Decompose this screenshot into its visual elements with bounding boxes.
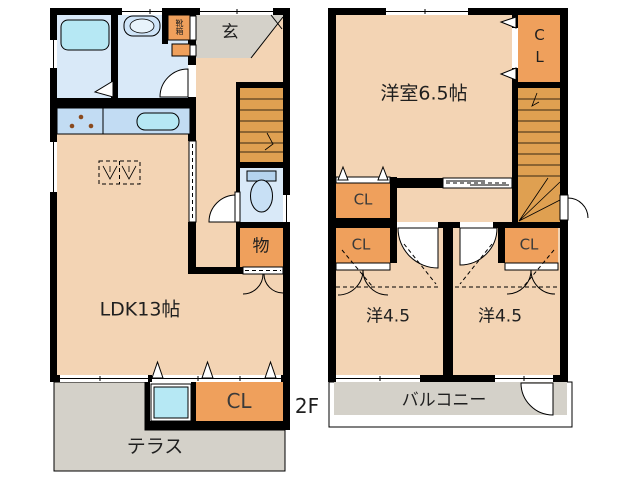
closet-left-lower-doors [336, 263, 390, 270]
ldk-label: LDK13帖 [100, 301, 181, 320]
room-left-door-opening [397, 222, 438, 228]
shoe-box-label: 靴箱 [175, 19, 183, 35]
entrance-bench [172, 44, 190, 56]
bathtub [61, 20, 109, 50]
washbasin [130, 19, 154, 33]
kitchen-stove-counter [57, 108, 103, 134]
room-right-door-opening [460, 222, 493, 228]
entrance-door-leaf [190, 45, 196, 56]
entrance-label: 玄 [222, 25, 239, 42]
closet-right-doors [505, 263, 558, 270]
storage-label: 物 [253, 239, 270, 256]
room-right-label: 洋4.5 [478, 309, 522, 326]
floor2-label: 2F [295, 396, 319, 416]
floor2-plan [328, 8, 588, 427]
toilet-door-leaf [235, 192, 240, 222]
closet-top-label: CL [532, 26, 547, 70]
closet-left-upper-label: CL [354, 193, 373, 208]
washroom-door-opening [188, 65, 196, 97]
terrace-label: テラス [127, 438, 184, 457]
service-box [154, 387, 188, 418]
stair-hall-door-swing [568, 198, 588, 218]
room-left-label: 洋4.5 [366, 309, 410, 326]
closet-top-opening [512, 28, 518, 68]
toilet-bowl [251, 180, 273, 212]
floorplan-canvas: 玄 靴箱 LDK13帖 物 CL テラス 2F 洋室6.5帖 CL CL CL … [0, 0, 638, 480]
main-room-label: 洋室6.5帖 [380, 85, 467, 104]
shoe-cabinet-door [190, 16, 196, 40]
closet-1f-label: CL [226, 391, 251, 411]
closet-right-label: CL [520, 238, 539, 253]
kitchen-sink [137, 113, 179, 130]
stair-hall-door [560, 195, 568, 220]
balcony-label: バルコニー [402, 393, 487, 410]
closet-left-lower-label: CL [352, 238, 371, 253]
